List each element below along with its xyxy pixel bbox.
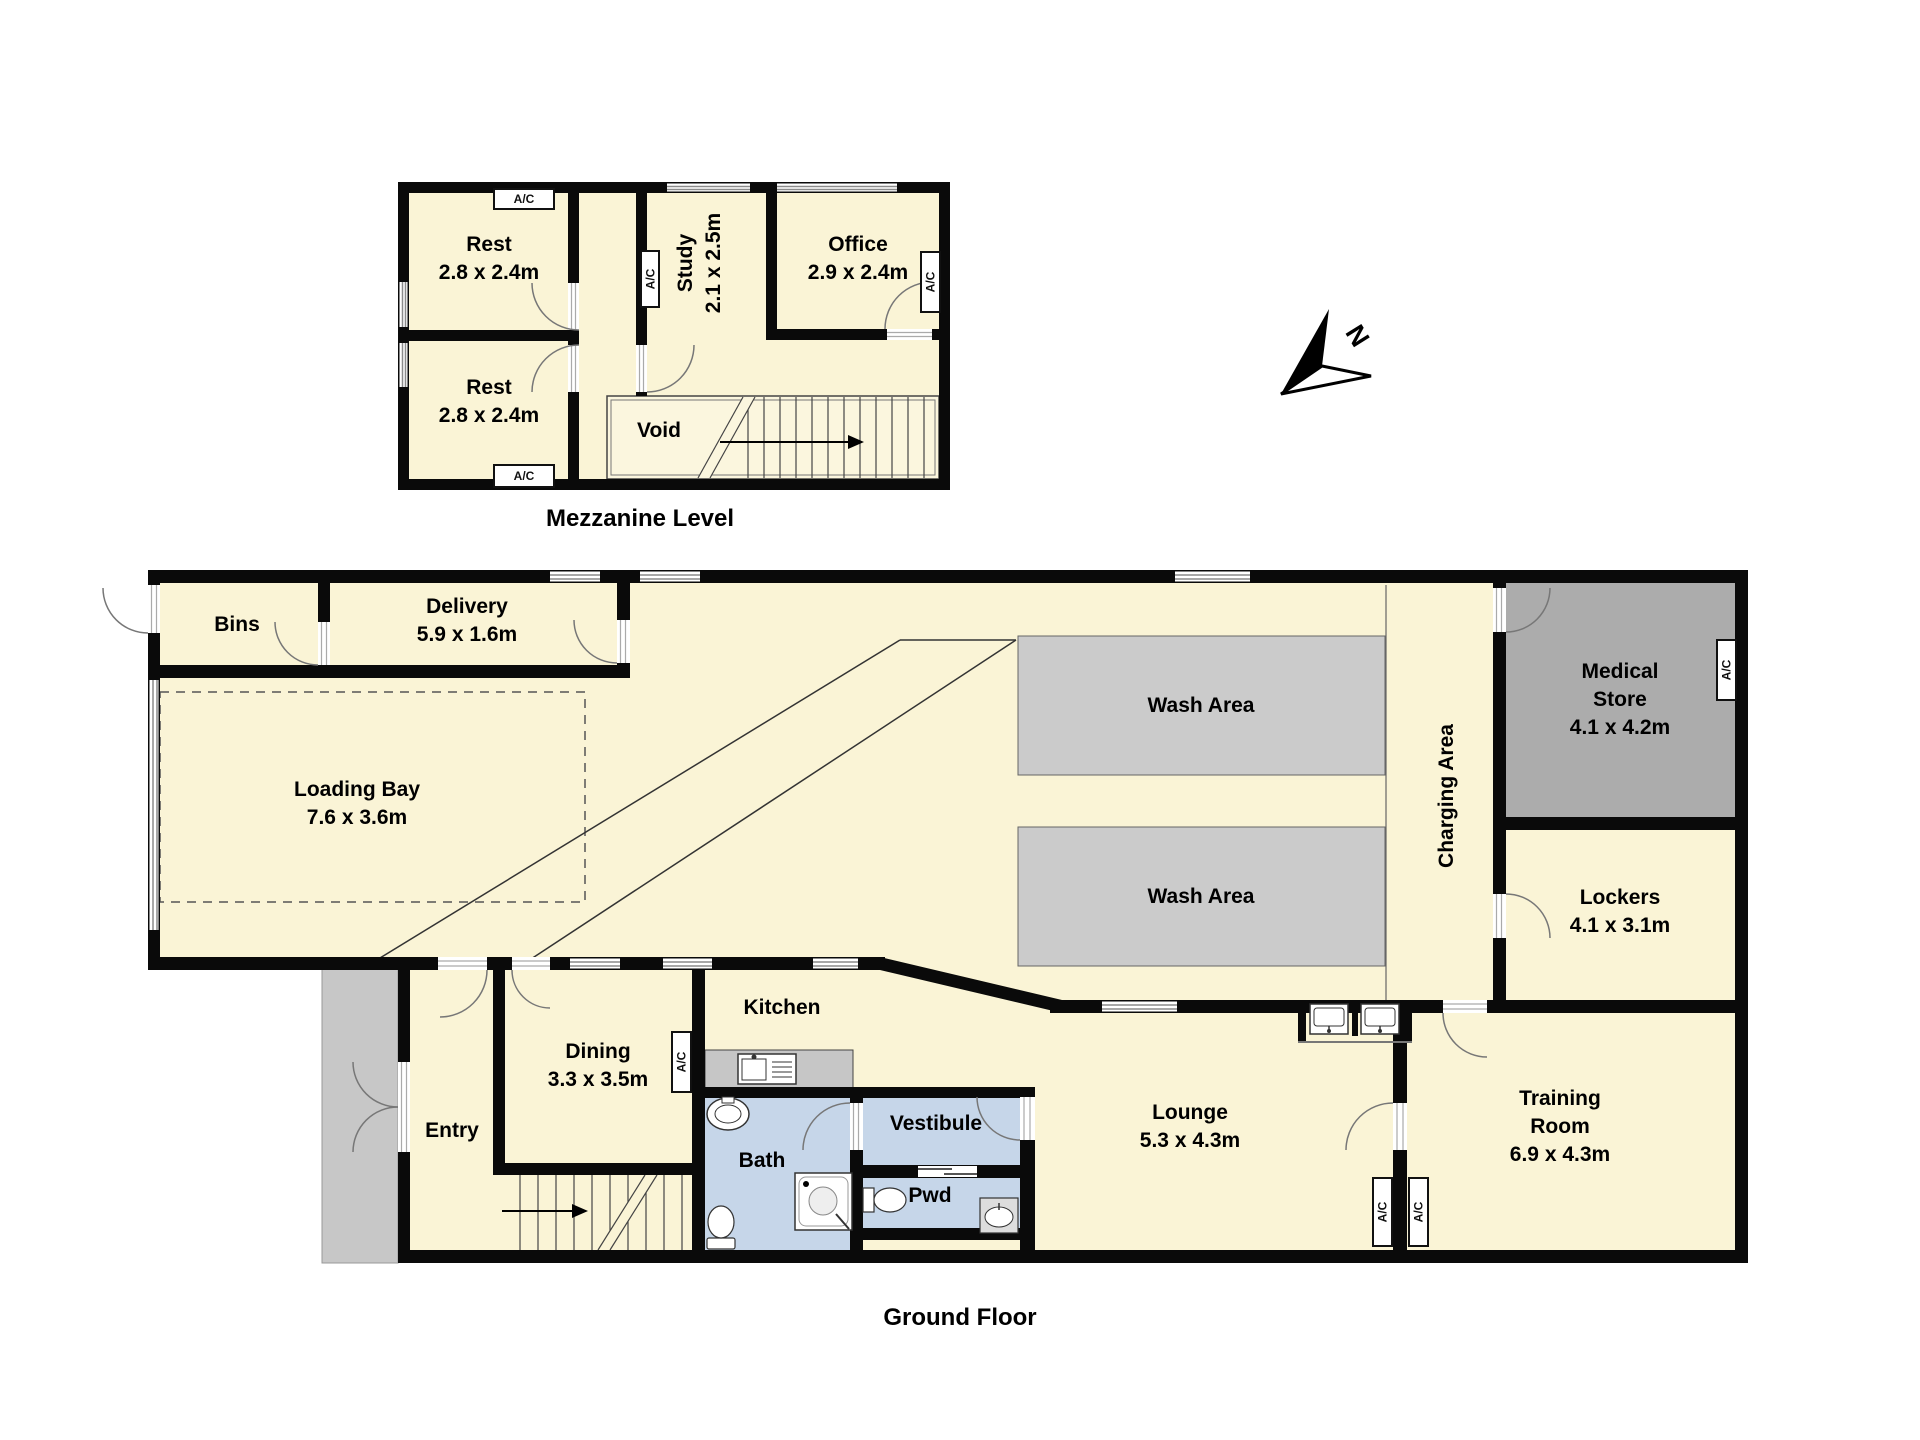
ac-label: A/C [924, 272, 938, 293]
ac-unit: A/C [493, 464, 555, 488]
room-label-vestibule: Vestibule [890, 1110, 982, 1138]
floorplan-page: A/C A/C A/C A/C A/C A/C A/C A/C Rest 2.8… [0, 0, 1920, 1440]
room-label-wash-area-1: Wash Area [1148, 692, 1255, 720]
mezzanine-title: Mezzanine Level [546, 505, 734, 533]
room-label-wash-area-2: Wash Area [1148, 883, 1255, 911]
ground-title: Ground Floor [883, 1304, 1036, 1332]
room-label-lounge: Lounge 5.3 x 4.3m [1140, 1099, 1240, 1155]
ac-label: A/C [514, 192, 535, 206]
room-label-charging-area: Charging Area [1433, 724, 1461, 868]
ac-label: A/C [514, 469, 535, 483]
room-label-bath: Bath [739, 1147, 786, 1175]
room-label-dining: Dining 3.3 x 3.5m [548, 1038, 648, 1094]
room-label-kitchen: Kitchen [743, 994, 820, 1022]
room-label-medical-store: Medical Store 4.1 x 4.2m [1570, 658, 1670, 742]
room-label-office: Office 2.9 x 2.4m [808, 231, 908, 287]
ac-label: A/C [643, 269, 657, 290]
kitchen-sink-icon [738, 1054, 796, 1084]
ac-unit: A/C [640, 250, 660, 308]
room-label-delivery: Delivery 5.9 x 1.6m [417, 593, 517, 649]
ac-label: A/C [1412, 1202, 1426, 1223]
ac-label: A/C [675, 1052, 689, 1073]
entry-porch [322, 967, 398, 1263]
pwd-slider-door [918, 1166, 977, 1177]
room-label-training-room: Training Room 6.9 x 4.3m [1510, 1085, 1610, 1169]
ac-label: A/C [1720, 660, 1734, 681]
room-label-loading-bay: Loading Bay 7.6 x 3.6m [294, 776, 420, 832]
room-label-lockers: Lockers 4.1 x 3.1m [1570, 884, 1670, 940]
north-arrow-icon [1281, 309, 1371, 394]
ac-unit: A/C [920, 251, 941, 313]
ac-unit: A/C [493, 188, 555, 210]
room-label-entry: Entry [425, 1117, 479, 1145]
room-label-void: Void [637, 417, 681, 445]
room-label-pwd: Pwd [908, 1182, 951, 1210]
ac-unit: A/C [1372, 1177, 1393, 1247]
ground-floor [103, 570, 1748, 1263]
ac-label: A/C [1376, 1202, 1390, 1223]
room-label-rest1: Rest 2.8 x 2.4m [439, 231, 539, 287]
room-label-study: Study 2.1 x 2.5m [672, 213, 728, 313]
toilet-icon [707, 1238, 735, 1249]
ac-unit: A/C [1716, 639, 1737, 701]
ac-unit: A/C [1408, 1177, 1429, 1247]
room-label-bins: Bins [214, 611, 260, 639]
toilet-icon [863, 1188, 874, 1212]
ac-unit: A/C [671, 1031, 692, 1093]
room-label-rest2: Rest 2.8 x 2.4m [439, 374, 539, 430]
